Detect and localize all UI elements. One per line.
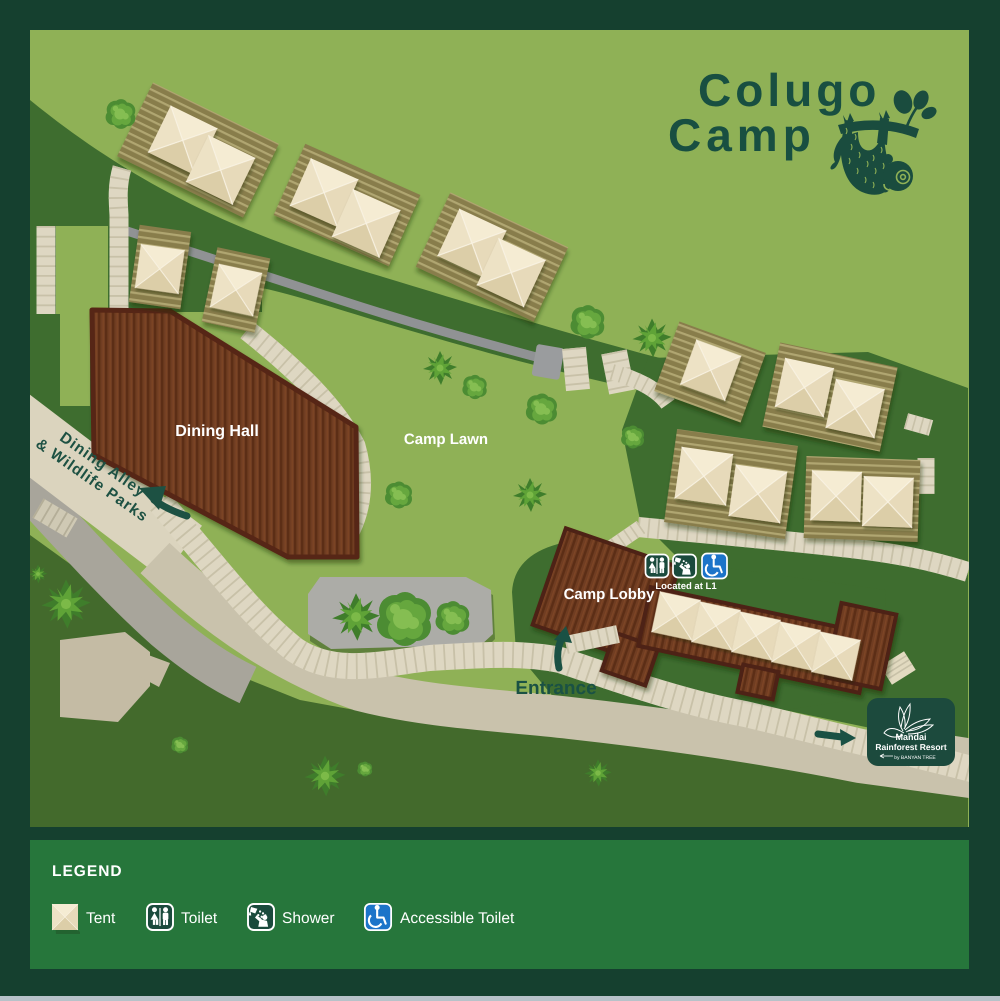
svg-text:Rainforest Resort: Rainforest Resort	[875, 742, 946, 752]
svg-text:Dining Hall: Dining Hall	[175, 423, 259, 440]
svg-text:Toilet: Toilet	[181, 910, 218, 927]
svg-text:Camp Lawn: Camp Lawn	[404, 431, 488, 448]
svg-text:Accessible Toilet: Accessible Toilet	[400, 910, 515, 927]
svg-text:Mandai: Mandai	[895, 732, 926, 742]
svg-text:Located at L1: Located at L1	[655, 581, 717, 592]
svg-text:Tent: Tent	[86, 910, 116, 927]
svg-text:Shower: Shower	[282, 910, 335, 927]
svg-text:Entrance: Entrance	[515, 678, 596, 699]
svg-text:by BANYAN TREE: by BANYAN TREE	[894, 755, 936, 761]
svg-text:Camp Lobby: Camp Lobby	[564, 586, 655, 603]
svg-text:Camp: Camp	[668, 109, 816, 161]
svg-text:LEGEND: LEGEND	[52, 863, 123, 880]
